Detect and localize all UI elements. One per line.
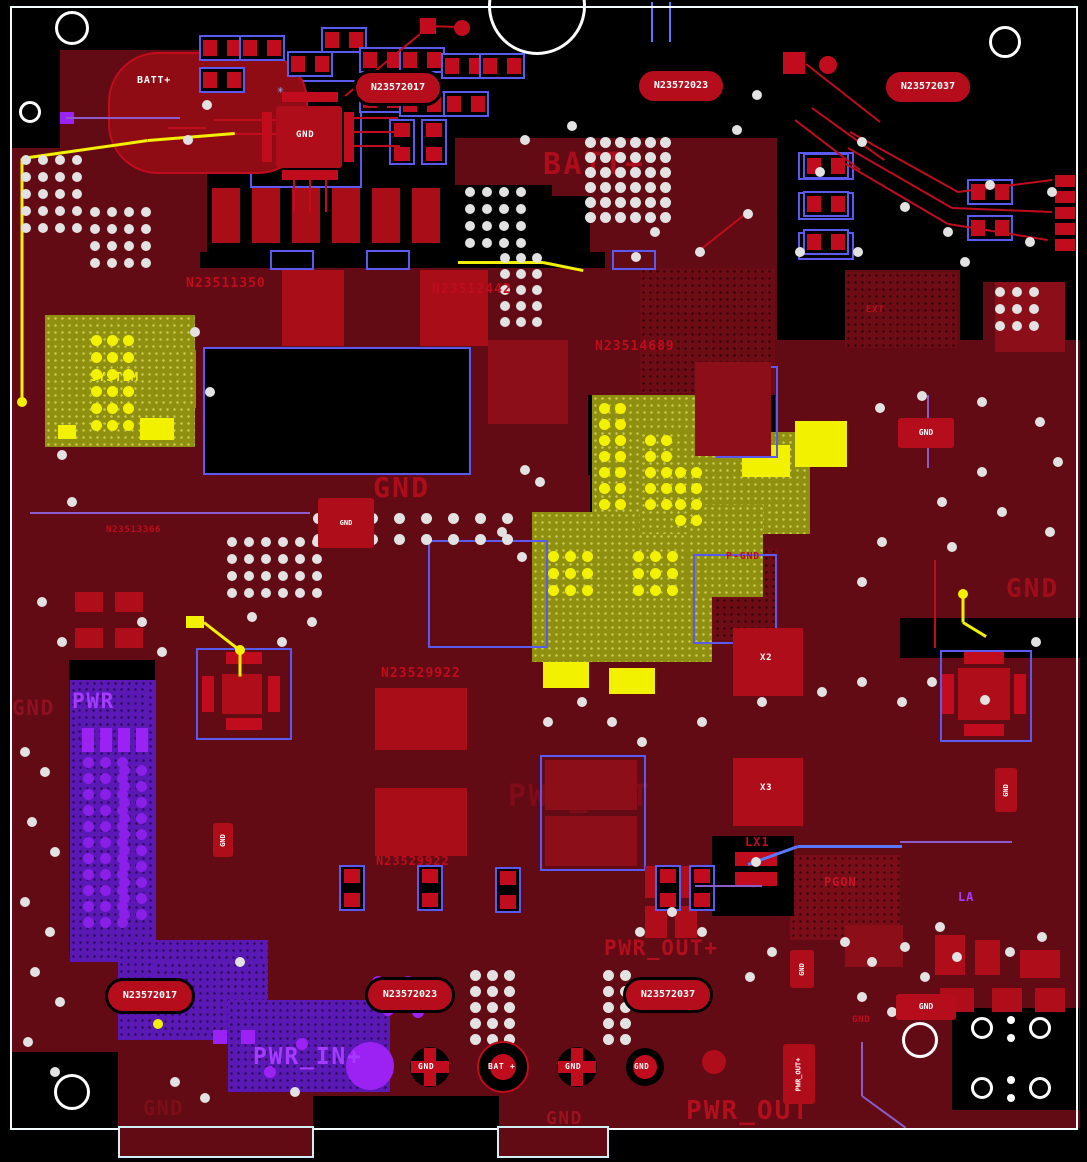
via [697, 717, 707, 727]
pad [344, 893, 360, 907]
via [200, 1093, 210, 1103]
via [1037, 932, 1047, 942]
via [517, 552, 527, 562]
net-label: BATT+ [137, 76, 171, 86]
via [853, 247, 863, 257]
net-badge-label: N23572023 [654, 81, 708, 91]
via-array [465, 204, 475, 214]
via-array [136, 781, 147, 792]
via [631, 252, 641, 262]
via-array [91, 420, 102, 431]
via [247, 612, 257, 622]
via-array [55, 223, 65, 233]
via-array [470, 1018, 481, 1029]
trace [900, 841, 1012, 843]
pad [202, 676, 214, 712]
via-array [585, 212, 596, 223]
via-array [100, 885, 111, 896]
via [935, 922, 945, 932]
via [50, 847, 60, 857]
via-array [995, 287, 1005, 297]
labeled-pad: GND [896, 994, 956, 1020]
via-array [585, 167, 596, 178]
net-label: P-GND [726, 552, 760, 562]
via-array [100, 853, 111, 864]
via-array [516, 301, 526, 311]
via [917, 391, 927, 401]
net-label: N23514689 [595, 340, 675, 353]
pad [992, 988, 1022, 1012]
pad [325, 32, 339, 48]
pad-label: GND [340, 520, 353, 527]
mounting-hole [1029, 1077, 1051, 1099]
via [183, 135, 193, 145]
via [960, 257, 970, 267]
via [55, 997, 65, 1007]
pad [427, 52, 441, 68]
via-array [615, 152, 626, 163]
pad [75, 592, 103, 612]
via-array [136, 909, 147, 920]
pad [964, 652, 1004, 664]
net-badge: N23572017 [353, 70, 443, 106]
via-array [261, 571, 271, 581]
pad [660, 893, 676, 907]
via-array [21, 223, 31, 233]
via [795, 247, 805, 257]
via [980, 695, 990, 705]
via-array [630, 197, 641, 208]
pad [267, 40, 281, 56]
pad [500, 871, 516, 885]
pad [694, 869, 710, 883]
pcb-canvas[interactable]: PWR_OUTBATT+GNDGNDGNDGNDGNDPWR_OUTPWR_OU… [0, 0, 1087, 1162]
trace [344, 145, 400, 147]
net-badge-label: N23572037 [901, 82, 955, 92]
pad [75, 628, 103, 648]
via-array [83, 901, 94, 912]
via-array [119, 877, 130, 888]
via-array [645, 152, 656, 163]
via-array [72, 155, 82, 165]
via-array [1012, 304, 1022, 314]
via-array [421, 534, 432, 545]
via [1045, 527, 1055, 537]
via-array [667, 568, 678, 579]
pad [488, 340, 568, 424]
pad-label: GND [1003, 784, 1010, 797]
via-array [582, 568, 593, 579]
via-array [532, 269, 542, 279]
via-array [119, 765, 130, 776]
via-array [123, 420, 134, 431]
via-array [312, 571, 322, 581]
via-array [295, 554, 305, 564]
via [37, 597, 47, 607]
via [732, 125, 742, 135]
trace [695, 885, 762, 887]
via-array [123, 352, 134, 363]
via-array [620, 970, 631, 981]
via-array [136, 797, 147, 808]
via-array [630, 182, 641, 193]
pad-label: GND [220, 834, 227, 847]
labeled-pad: GND [213, 823, 233, 857]
pad [422, 869, 438, 883]
via-array [1012, 321, 1022, 331]
via-array [615, 483, 626, 494]
via [577, 697, 587, 707]
via [290, 1087, 300, 1097]
net-label: GND [373, 474, 430, 502]
origin-marker-icon: ✳ [277, 84, 285, 95]
via-array [615, 435, 626, 446]
pad-label: GND [919, 429, 933, 437]
net-label: GND [296, 131, 314, 140]
net-badge: N23572037 [883, 69, 973, 105]
via-array [660, 152, 671, 163]
via-array [582, 585, 593, 596]
net-label: GND [143, 1098, 184, 1118]
pad [447, 96, 461, 112]
via [900, 942, 910, 952]
via-array [107, 258, 117, 268]
connector-label: GND [565, 1063, 581, 1071]
via [45, 927, 55, 937]
via-array [675, 467, 686, 478]
via-array [136, 845, 147, 856]
via-array [499, 187, 509, 197]
net-label: N23513366 [106, 526, 161, 535]
pad [422, 893, 438, 907]
via-array [660, 137, 671, 148]
via-array [227, 571, 237, 581]
via-array [630, 137, 641, 148]
pad-label: GND [799, 963, 806, 976]
pad [1055, 239, 1075, 251]
via-array [100, 901, 111, 912]
via [190, 327, 200, 337]
via-array [21, 206, 31, 216]
via-array [691, 499, 702, 510]
via [1053, 457, 1063, 467]
via-array [667, 585, 678, 596]
via-array [645, 451, 656, 462]
marker-dot [1007, 1034, 1015, 1042]
marker-dot [1007, 1094, 1015, 1102]
pad [344, 869, 360, 883]
pad [660, 869, 676, 883]
via-array [499, 204, 509, 214]
via-array [278, 537, 288, 547]
via-array [548, 551, 559, 562]
pad [115, 592, 143, 612]
via [977, 467, 987, 477]
via [1035, 417, 1045, 427]
via-array [603, 1034, 614, 1045]
via [877, 537, 887, 547]
via-array [516, 269, 526, 279]
via-array [645, 167, 656, 178]
via-array [83, 869, 94, 880]
via-array [482, 221, 492, 231]
via-array [600, 167, 611, 178]
pad [140, 418, 174, 440]
pad [186, 616, 204, 628]
via [857, 137, 867, 147]
via-array [615, 403, 626, 414]
via-array [107, 386, 118, 397]
pad [203, 72, 217, 88]
via-array [136, 765, 147, 776]
via-array [675, 515, 686, 526]
via-array [532, 253, 542, 263]
via-array [72, 189, 82, 199]
net-label: X2 [760, 654, 772, 663]
pad [958, 668, 1010, 720]
via-array [448, 534, 459, 545]
mounting-hole [971, 1017, 993, 1039]
pad [394, 147, 410, 161]
via-array [599, 419, 610, 430]
pad [795, 421, 847, 467]
via-array [516, 221, 526, 231]
pad [1014, 674, 1026, 714]
trace [30, 512, 310, 514]
pad [507, 58, 521, 74]
pad [807, 234, 821, 250]
mounting-hole [1029, 1017, 1051, 1039]
net-badge-label: N23572017 [123, 991, 177, 1001]
pad [831, 234, 845, 250]
via-array [475, 513, 486, 524]
via-array [90, 224, 100, 234]
via-array [465, 221, 475, 231]
via [137, 617, 147, 627]
via [235, 957, 245, 967]
net-label: GND [852, 1016, 870, 1025]
via-array [630, 152, 641, 163]
pad [315, 56, 329, 72]
trace [845, 163, 948, 225]
via-array [136, 813, 147, 824]
via-array [295, 571, 305, 581]
via-array [660, 212, 671, 223]
via-array [1029, 304, 1039, 314]
via-array [278, 554, 288, 564]
via-array [100, 917, 111, 928]
pad [694, 893, 710, 907]
pad [227, 72, 241, 88]
via-array [599, 435, 610, 446]
marker-dot [958, 589, 968, 599]
labeled-pad: GND [790, 950, 814, 988]
via-array [482, 187, 492, 197]
via-array [502, 513, 513, 524]
pad [942, 674, 954, 714]
pad [282, 92, 338, 102]
mounting-hole [19, 101, 41, 123]
via-array [136, 829, 147, 840]
via-array [650, 585, 661, 596]
via-array [72, 223, 82, 233]
via [1047, 187, 1057, 197]
board-cutout [313, 1096, 499, 1128]
via [767, 947, 777, 957]
via-array [516, 238, 526, 248]
via-array [599, 499, 610, 510]
via [697, 927, 707, 937]
via-array [600, 152, 611, 163]
via-array [83, 805, 94, 816]
via-array [504, 986, 515, 997]
via-array [124, 258, 134, 268]
via [997, 507, 1007, 517]
via-array [603, 970, 614, 981]
via-array [645, 467, 656, 478]
via [307, 617, 317, 627]
via-array [119, 781, 130, 792]
net-badge: N23572023 [636, 68, 726, 104]
via-array [482, 238, 492, 248]
via-array [487, 986, 498, 997]
via-array [55, 206, 65, 216]
pad [1055, 191, 1075, 203]
via-array [38, 223, 48, 233]
pad [136, 728, 148, 752]
via-array [633, 568, 644, 579]
via-array [394, 534, 405, 545]
pad [1055, 223, 1075, 235]
via-array [107, 420, 118, 431]
via-array [91, 352, 102, 363]
pad [426, 123, 442, 137]
via-array [691, 483, 702, 494]
via [543, 717, 553, 727]
via [157, 647, 167, 657]
net-badge: N23572017 [105, 978, 195, 1014]
mounting-hole [989, 26, 1021, 58]
net-label: EXT [866, 306, 884, 315]
pad [1055, 175, 1075, 187]
via [857, 677, 867, 687]
via-array [487, 1018, 498, 1029]
via [27, 817, 37, 827]
via-array [504, 1002, 515, 1013]
via [875, 403, 885, 413]
via-array [124, 241, 134, 251]
via-array [615, 137, 626, 148]
via-array [55, 172, 65, 182]
pad [243, 40, 257, 56]
via-array [261, 554, 271, 564]
marker-dot [235, 645, 245, 655]
net-badge: N23572023 [365, 977, 455, 1013]
trace [861, 1042, 863, 1096]
via-array [615, 197, 626, 208]
pad [735, 872, 777, 886]
via-array [645, 197, 656, 208]
via-array [475, 534, 486, 545]
via-array [100, 773, 111, 784]
via-array [38, 206, 48, 216]
pad [291, 56, 305, 72]
pad [609, 668, 655, 694]
via-array [136, 893, 147, 904]
via-array [91, 386, 102, 397]
pad [975, 940, 1000, 975]
pad [971, 184, 985, 200]
via-array [615, 167, 626, 178]
via-array [645, 137, 656, 148]
trace [934, 560, 936, 648]
via-array [615, 467, 626, 478]
via-array [470, 1002, 481, 1013]
pad [831, 158, 845, 174]
via-array [107, 224, 117, 234]
via-array [675, 499, 686, 510]
pad [471, 96, 485, 112]
trace [805, 63, 880, 123]
via-array [141, 241, 151, 251]
via [50, 1067, 60, 1077]
trace [293, 170, 295, 212]
via-array [600, 212, 611, 223]
via-array [532, 317, 542, 327]
via-array [448, 513, 459, 524]
trace [230, 133, 276, 135]
pad [292, 188, 320, 243]
pad [213, 1030, 227, 1044]
pad [500, 895, 516, 909]
via-array [565, 585, 576, 596]
pad [82, 728, 94, 752]
pad [349, 32, 363, 48]
via [840, 937, 850, 947]
marker-dot [153, 1019, 163, 1029]
via [23, 1037, 33, 1047]
via-array [661, 451, 672, 462]
pad [445, 58, 459, 74]
via-array [83, 789, 94, 800]
via-array [100, 789, 111, 800]
via-array [615, 451, 626, 462]
labeled-pad: GND [318, 498, 374, 548]
via-array [83, 917, 94, 928]
via [40, 767, 50, 777]
via-array [500, 317, 510, 327]
via-array [516, 317, 526, 327]
via [202, 100, 212, 110]
via-array [630, 212, 641, 223]
via-array [123, 335, 134, 346]
board-tab [118, 1126, 314, 1158]
via-array [83, 885, 94, 896]
via-array [661, 499, 672, 510]
via-array [603, 1018, 614, 1029]
net-label: SYSTEM [90, 371, 139, 383]
via-array [516, 204, 526, 214]
via-array [600, 197, 611, 208]
via [751, 857, 761, 867]
via-array [119, 861, 130, 872]
pad [964, 724, 1004, 736]
mounting-hole [54, 1074, 90, 1110]
via-array [995, 304, 1005, 314]
via [1005, 947, 1015, 957]
trace [669, 2, 671, 42]
via [635, 927, 645, 937]
